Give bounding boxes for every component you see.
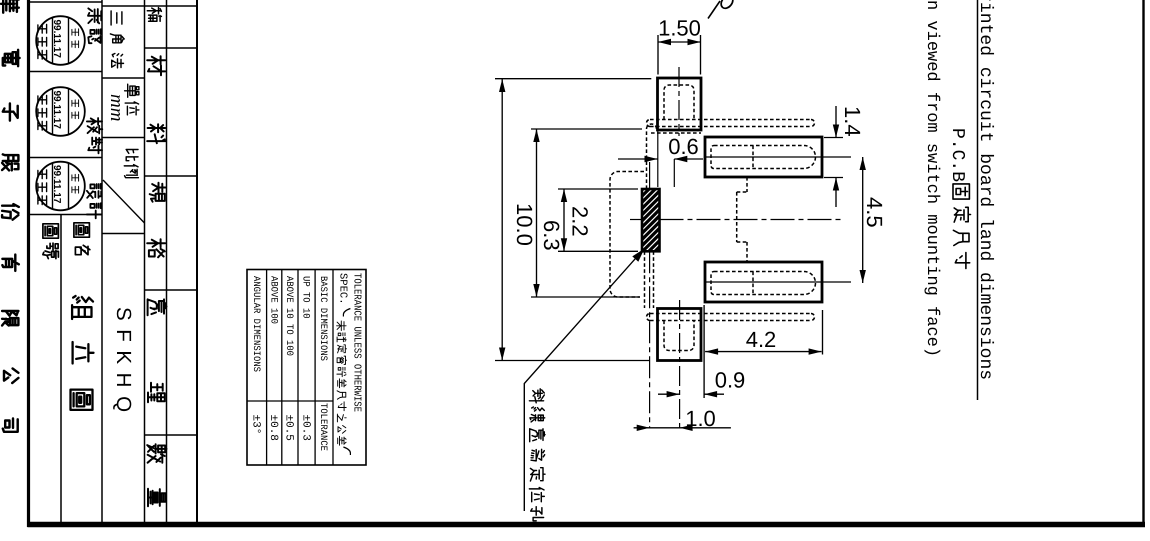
svg-text:±3°: ±3° — [250, 415, 262, 435]
svg-text:mm: mm — [106, 94, 127, 121]
svg-text:±0.3: ±0.3 — [299, 415, 311, 441]
svg-text:BASIC DIMENSIONS: BASIC DIMENSIONS — [318, 276, 329, 361]
svg-text:ANGULAR DIMENSIONS: ANGULAR DIMENSIONS — [251, 276, 262, 372]
svg-text:1.4: 1.4 — [840, 106, 865, 137]
svg-text:10.0: 10.0 — [512, 203, 537, 246]
svg-text:±0.5: ±0.5 — [283, 415, 295, 441]
svg-text:(when viewed from switch mount: (when viewed from switch mounting face) — [922, 0, 941, 357]
svg-text:ABOVE 100: ABOVE 100 — [268, 276, 279, 324]
svg-text:SFKHQ: SFKHQ — [112, 307, 135, 421]
svg-text:99.11.17: 99.11.17 — [51, 165, 62, 204]
svg-text:4.5: 4.5 — [862, 197, 887, 228]
svg-text:99.11.17: 99.11.17 — [51, 20, 62, 59]
svg-text:2.2: 2.2 — [568, 206, 593, 237]
svg-text:4.2: 4.2 — [746, 327, 777, 352]
svg-text:99.11.17: 99.11.17 — [51, 91, 62, 130]
svg-text:±0.8: ±0.8 — [267, 415, 279, 441]
svg-text:1.0: 1.0 — [685, 406, 716, 431]
svg-text:TOLERANCE UNLESS OTHERWISE: TOLERANCE UNLESS OTHERWISE — [351, 273, 363, 412]
svg-text:0.9: 0.9 — [715, 368, 746, 393]
svg-text:TOLERANCE: TOLERANCE — [318, 403, 329, 451]
svg-text:ABOVE 10 TO 100: ABOVE 10 TO 100 — [284, 276, 295, 356]
svg-text:UP TO 10: UP TO 10 — [301, 276, 312, 319]
svg-text:6.3: 6.3 — [539, 220, 564, 251]
svg-text:P.C.B: P.C.B — [947, 128, 967, 182]
svg-text:1.50: 1.50 — [658, 16, 701, 41]
svg-text:SPEC.: SPEC. — [336, 273, 348, 305]
svg-text:0.6: 0.6 — [668, 134, 699, 159]
